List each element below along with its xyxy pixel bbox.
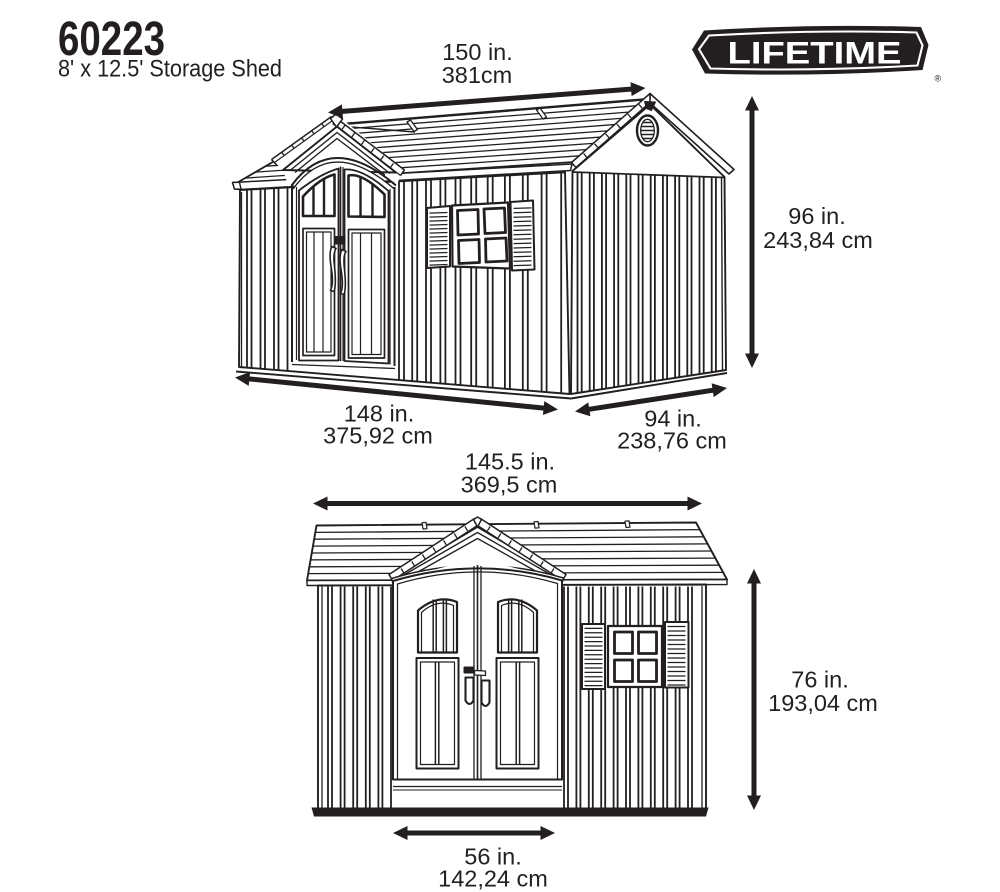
svg-text:381cm: 381cm <box>442 62 513 88</box>
svg-text:238,76 cm: 238,76 cm <box>617 428 727 454</box>
svg-text:LIFETIME: LIFETIME <box>728 35 902 71</box>
svg-text:375,92 cm: 375,92 cm <box>323 423 433 449</box>
svg-text:96 in.: 96 in. <box>788 203 846 229</box>
svg-text:76 in.: 76 in. <box>791 667 849 693</box>
svg-text:193,04 cm: 193,04 cm <box>768 690 878 716</box>
svg-text:142,24 cm: 142,24 cm <box>438 866 548 892</box>
svg-text:8' x 12.5' Storage Shed: 8' x 12.5' Storage Shed <box>58 56 282 83</box>
svg-text:369,5 cm: 369,5 cm <box>461 472 558 498</box>
svg-text:®: ® <box>935 74 942 84</box>
svg-text:243,84 cm: 243,84 cm <box>763 227 873 253</box>
